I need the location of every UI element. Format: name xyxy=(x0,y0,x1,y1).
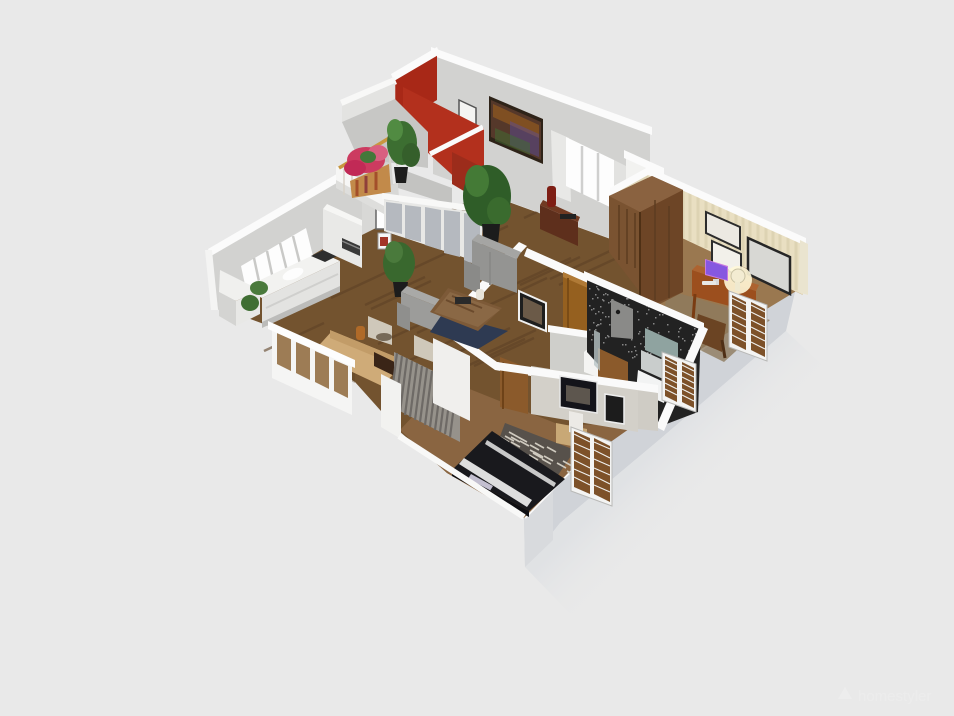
svg-text:homestyler: homestyler xyxy=(858,688,931,705)
